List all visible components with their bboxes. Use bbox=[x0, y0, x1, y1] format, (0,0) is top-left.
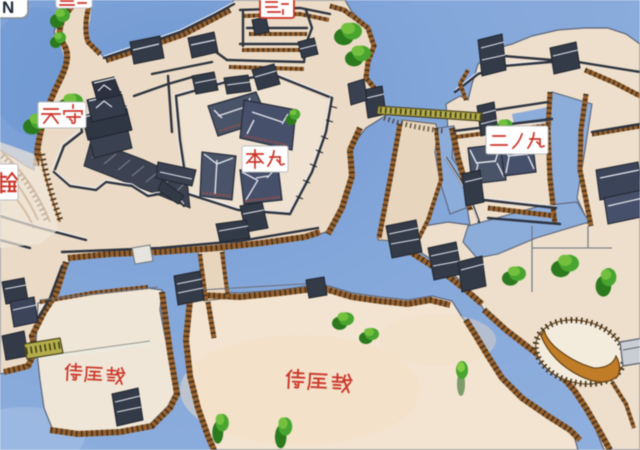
svg-text:N: N bbox=[2, 0, 14, 17]
